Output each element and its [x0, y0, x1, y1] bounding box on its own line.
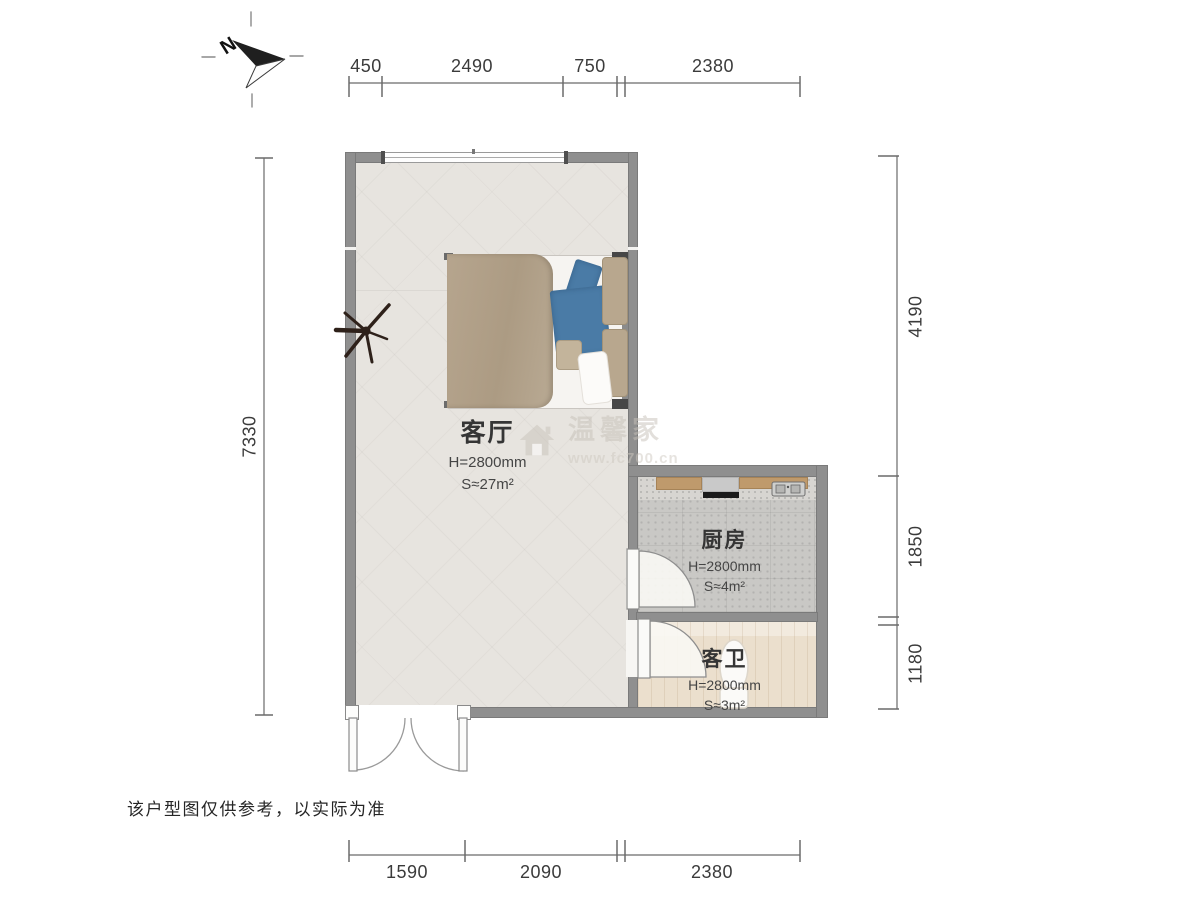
kitchen-label: 厨房 H=2800mm S≈4m²	[662, 524, 787, 594]
wall-joint	[628, 247, 638, 250]
window	[383, 152, 568, 163]
dim-right-2: 1850	[906, 505, 927, 589]
dim-top-3: 750	[558, 56, 622, 77]
dim-left-1: 7330	[240, 395, 261, 479]
dim-top-1: 450	[334, 56, 398, 77]
window-mullion	[564, 151, 568, 164]
dim-right-3: 1180	[906, 622, 927, 706]
kitchen-doorway	[626, 549, 640, 609]
window-mullion	[381, 151, 385, 164]
living-room-area: S≈27m²	[420, 476, 555, 493]
window-mullion	[472, 149, 475, 154]
wall-kitchen-right	[816, 465, 828, 718]
kitchen-name: 厨房	[662, 524, 787, 554]
entry-door-leaf-right	[459, 718, 467, 771]
dimension-line-top	[349, 76, 800, 97]
floor-plan-canvas: N	[0, 0, 1200, 900]
bathroom-area: S≈3m²	[662, 697, 787, 713]
wall-left	[345, 152, 356, 718]
dimension-line-bottom	[349, 840, 800, 862]
disclaimer-text: 该户型图仅供参考，以实际为准	[127, 795, 386, 820]
compass-dark-needle	[232, 40, 285, 66]
kitchen-counter-left	[656, 477, 702, 490]
entry-double-door	[349, 718, 467, 771]
entry-door-jamb	[345, 705, 359, 720]
wall-joint	[345, 247, 356, 250]
dim-right-1: 4190	[906, 275, 927, 359]
dim-bottom-1: 1590	[375, 862, 439, 883]
living-room-name: 客厅	[420, 413, 555, 449]
dim-top-2: 2490	[440, 56, 504, 77]
stove-icon	[702, 477, 739, 492]
entry-door-jamb	[457, 705, 471, 720]
living-room-label: 客厅 H=2800mm S≈27m²	[420, 413, 555, 493]
bed-corner	[612, 399, 628, 409]
compass-north-label: N	[216, 33, 240, 59]
entry-doorway	[359, 705, 457, 720]
living-room-height: H=2800mm	[420, 454, 555, 471]
bathroom-label: 客卫 H=2800mm S≈3m²	[662, 643, 787, 713]
bathroom-doorway	[626, 620, 640, 677]
bed-pillow	[602, 257, 628, 325]
dim-bottom-3: 2380	[680, 862, 744, 883]
bed-duvet	[447, 254, 553, 408]
dimension-line-right	[878, 156, 899, 709]
north-arrow-icon: N	[202, 12, 303, 107]
bathroom-height: H=2800mm	[662, 677, 787, 693]
wall-kitchen-bath-divider	[636, 612, 818, 622]
dim-bottom-2: 2090	[509, 862, 573, 883]
entry-door-leaf-left	[349, 718, 357, 771]
kitchen-area: S≈4m²	[662, 578, 787, 594]
stove-bar-icon	[703, 492, 739, 498]
dim-top-4: 2380	[681, 56, 745, 77]
bathroom-name: 客卫	[662, 643, 787, 673]
kitchen-height: H=2800mm	[662, 558, 787, 574]
kitchen-counter-right	[739, 477, 808, 489]
bed-white-blanket	[577, 350, 613, 405]
compass-light-needle	[246, 59, 285, 88]
wall-kitchen-top	[628, 465, 828, 477]
